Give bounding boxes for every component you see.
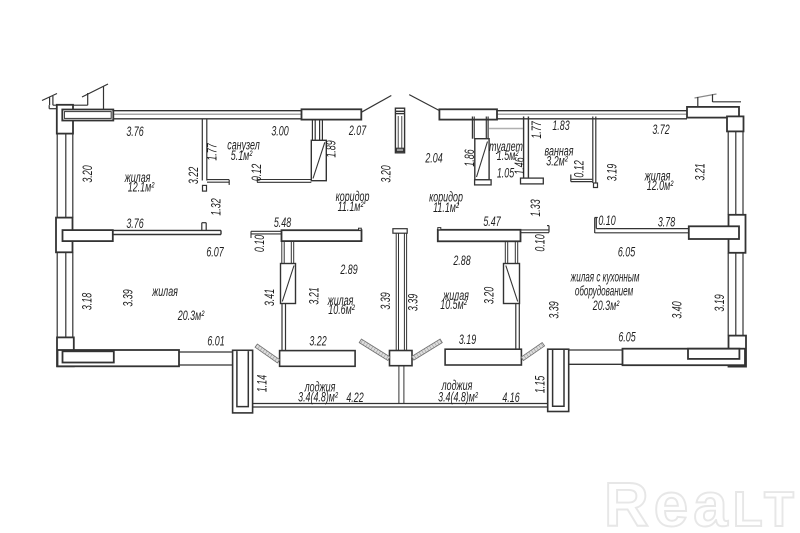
svg-text:3.76: 3.76 bbox=[126, 126, 144, 140]
svg-text:3.00: 3.00 bbox=[271, 125, 289, 139]
svg-text:3.41: 3.41 bbox=[264, 289, 278, 306]
svg-text:0.12: 0.12 bbox=[251, 163, 265, 181]
svg-text:20.3м²: 20.3м² bbox=[177, 310, 205, 324]
svg-text:3.20: 3.20 bbox=[380, 165, 394, 183]
svg-text:0.10: 0.10 bbox=[534, 234, 548, 252]
svg-text:6.01: 6.01 bbox=[207, 335, 224, 349]
svg-text:1.83: 1.83 bbox=[552, 120, 570, 134]
svg-text:3.18: 3.18 bbox=[81, 292, 95, 310]
svg-text:3.2м²: 3.2м² bbox=[546, 155, 568, 169]
svg-text:4.16: 4.16 bbox=[502, 391, 520, 405]
svg-text:1.32: 1.32 bbox=[210, 198, 224, 216]
svg-text:11.1м²: 11.1м² bbox=[433, 201, 460, 215]
svg-text:20.3м²: 20.3м² bbox=[592, 300, 620, 314]
svg-text:2.07: 2.07 bbox=[348, 125, 367, 139]
svg-text:10.5м²: 10.5м² bbox=[440, 299, 467, 313]
svg-text:3.78: 3.78 bbox=[658, 216, 676, 230]
svg-text:3.76: 3.76 bbox=[126, 218, 144, 232]
svg-text:6.07: 6.07 bbox=[206, 246, 224, 260]
svg-text:0.12: 0.12 bbox=[573, 160, 587, 178]
svg-text:жилая: жилая bbox=[151, 286, 178, 300]
svg-text:6.05: 6.05 bbox=[618, 331, 636, 345]
svg-text:3.39: 3.39 bbox=[548, 301, 562, 319]
svg-text:1.15: 1.15 bbox=[534, 375, 548, 393]
svg-text:1.46: 1.46 bbox=[514, 157, 528, 175]
svg-text:1.33: 1.33 bbox=[530, 199, 544, 217]
svg-text:1.05: 1.05 bbox=[497, 167, 515, 181]
svg-text:1.77: 1.77 bbox=[206, 143, 220, 161]
svg-text:6.05: 6.05 bbox=[618, 246, 636, 260]
svg-text:3.39: 3.39 bbox=[122, 289, 136, 307]
svg-text:3.20: 3.20 bbox=[82, 165, 96, 183]
svg-text:3.39: 3.39 bbox=[380, 292, 394, 310]
svg-text:2.88: 2.88 bbox=[453, 255, 472, 269]
svg-text:3.21: 3.21 bbox=[308, 287, 322, 304]
svg-text:3.19: 3.19 bbox=[606, 163, 620, 181]
svg-text:1.86: 1.86 bbox=[464, 149, 478, 167]
svg-text:10.6м²: 10.6м² bbox=[328, 304, 355, 318]
svg-text:3.72: 3.72 bbox=[652, 124, 670, 138]
svg-text:3.19: 3.19 bbox=[714, 294, 728, 312]
svg-text:12.0м²: 12.0м² bbox=[647, 180, 674, 194]
svg-text:11.1м²: 11.1м² bbox=[338, 200, 365, 214]
svg-text:4.22: 4.22 bbox=[346, 391, 364, 405]
svg-text:3.22: 3.22 bbox=[188, 166, 202, 184]
svg-text:оборудованием: оборудованием bbox=[575, 285, 634, 300]
svg-text:3.4(4.8)м²: 3.4(4.8)м² bbox=[298, 391, 339, 405]
svg-text:3.22: 3.22 bbox=[309, 335, 327, 349]
svg-text:2.04: 2.04 bbox=[425, 152, 443, 166]
svg-text:2.89: 2.89 bbox=[340, 264, 359, 278]
svg-text:5.48: 5.48 bbox=[274, 217, 292, 231]
svg-text:12.1м²: 12.1м² bbox=[128, 181, 155, 195]
svg-text:3.21: 3.21 bbox=[694, 163, 708, 180]
svg-text:1.77: 1.77 bbox=[531, 121, 545, 139]
svg-text:3.19: 3.19 bbox=[459, 334, 477, 348]
svg-text:3.4(4.8)м²: 3.4(4.8)м² bbox=[438, 391, 479, 405]
svg-text:0.10: 0.10 bbox=[254, 234, 268, 252]
svg-text:3.40: 3.40 bbox=[671, 301, 685, 319]
svg-text:1.14: 1.14 bbox=[256, 375, 270, 392]
svg-text:жилая с кухонным: жилая с кухонным bbox=[570, 271, 640, 286]
svg-text:3.39: 3.39 bbox=[407, 293, 421, 311]
svg-text:1.89: 1.89 bbox=[325, 140, 339, 158]
svg-text:5.1м²: 5.1м² bbox=[231, 150, 253, 164]
svg-text:5.47: 5.47 bbox=[483, 216, 501, 230]
svg-text:3.20: 3.20 bbox=[483, 286, 497, 304]
svg-text:0.10: 0.10 bbox=[598, 215, 616, 229]
